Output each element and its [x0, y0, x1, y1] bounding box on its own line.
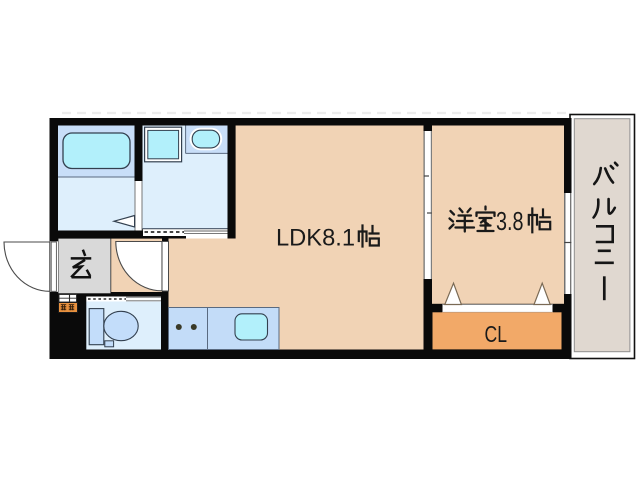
svg-text:LDK8.1: LDK8.1 — [276, 224, 355, 251]
svg-text:CL: CL — [485, 321, 508, 347]
svg-text:3.8: 3.8 — [496, 206, 524, 236]
